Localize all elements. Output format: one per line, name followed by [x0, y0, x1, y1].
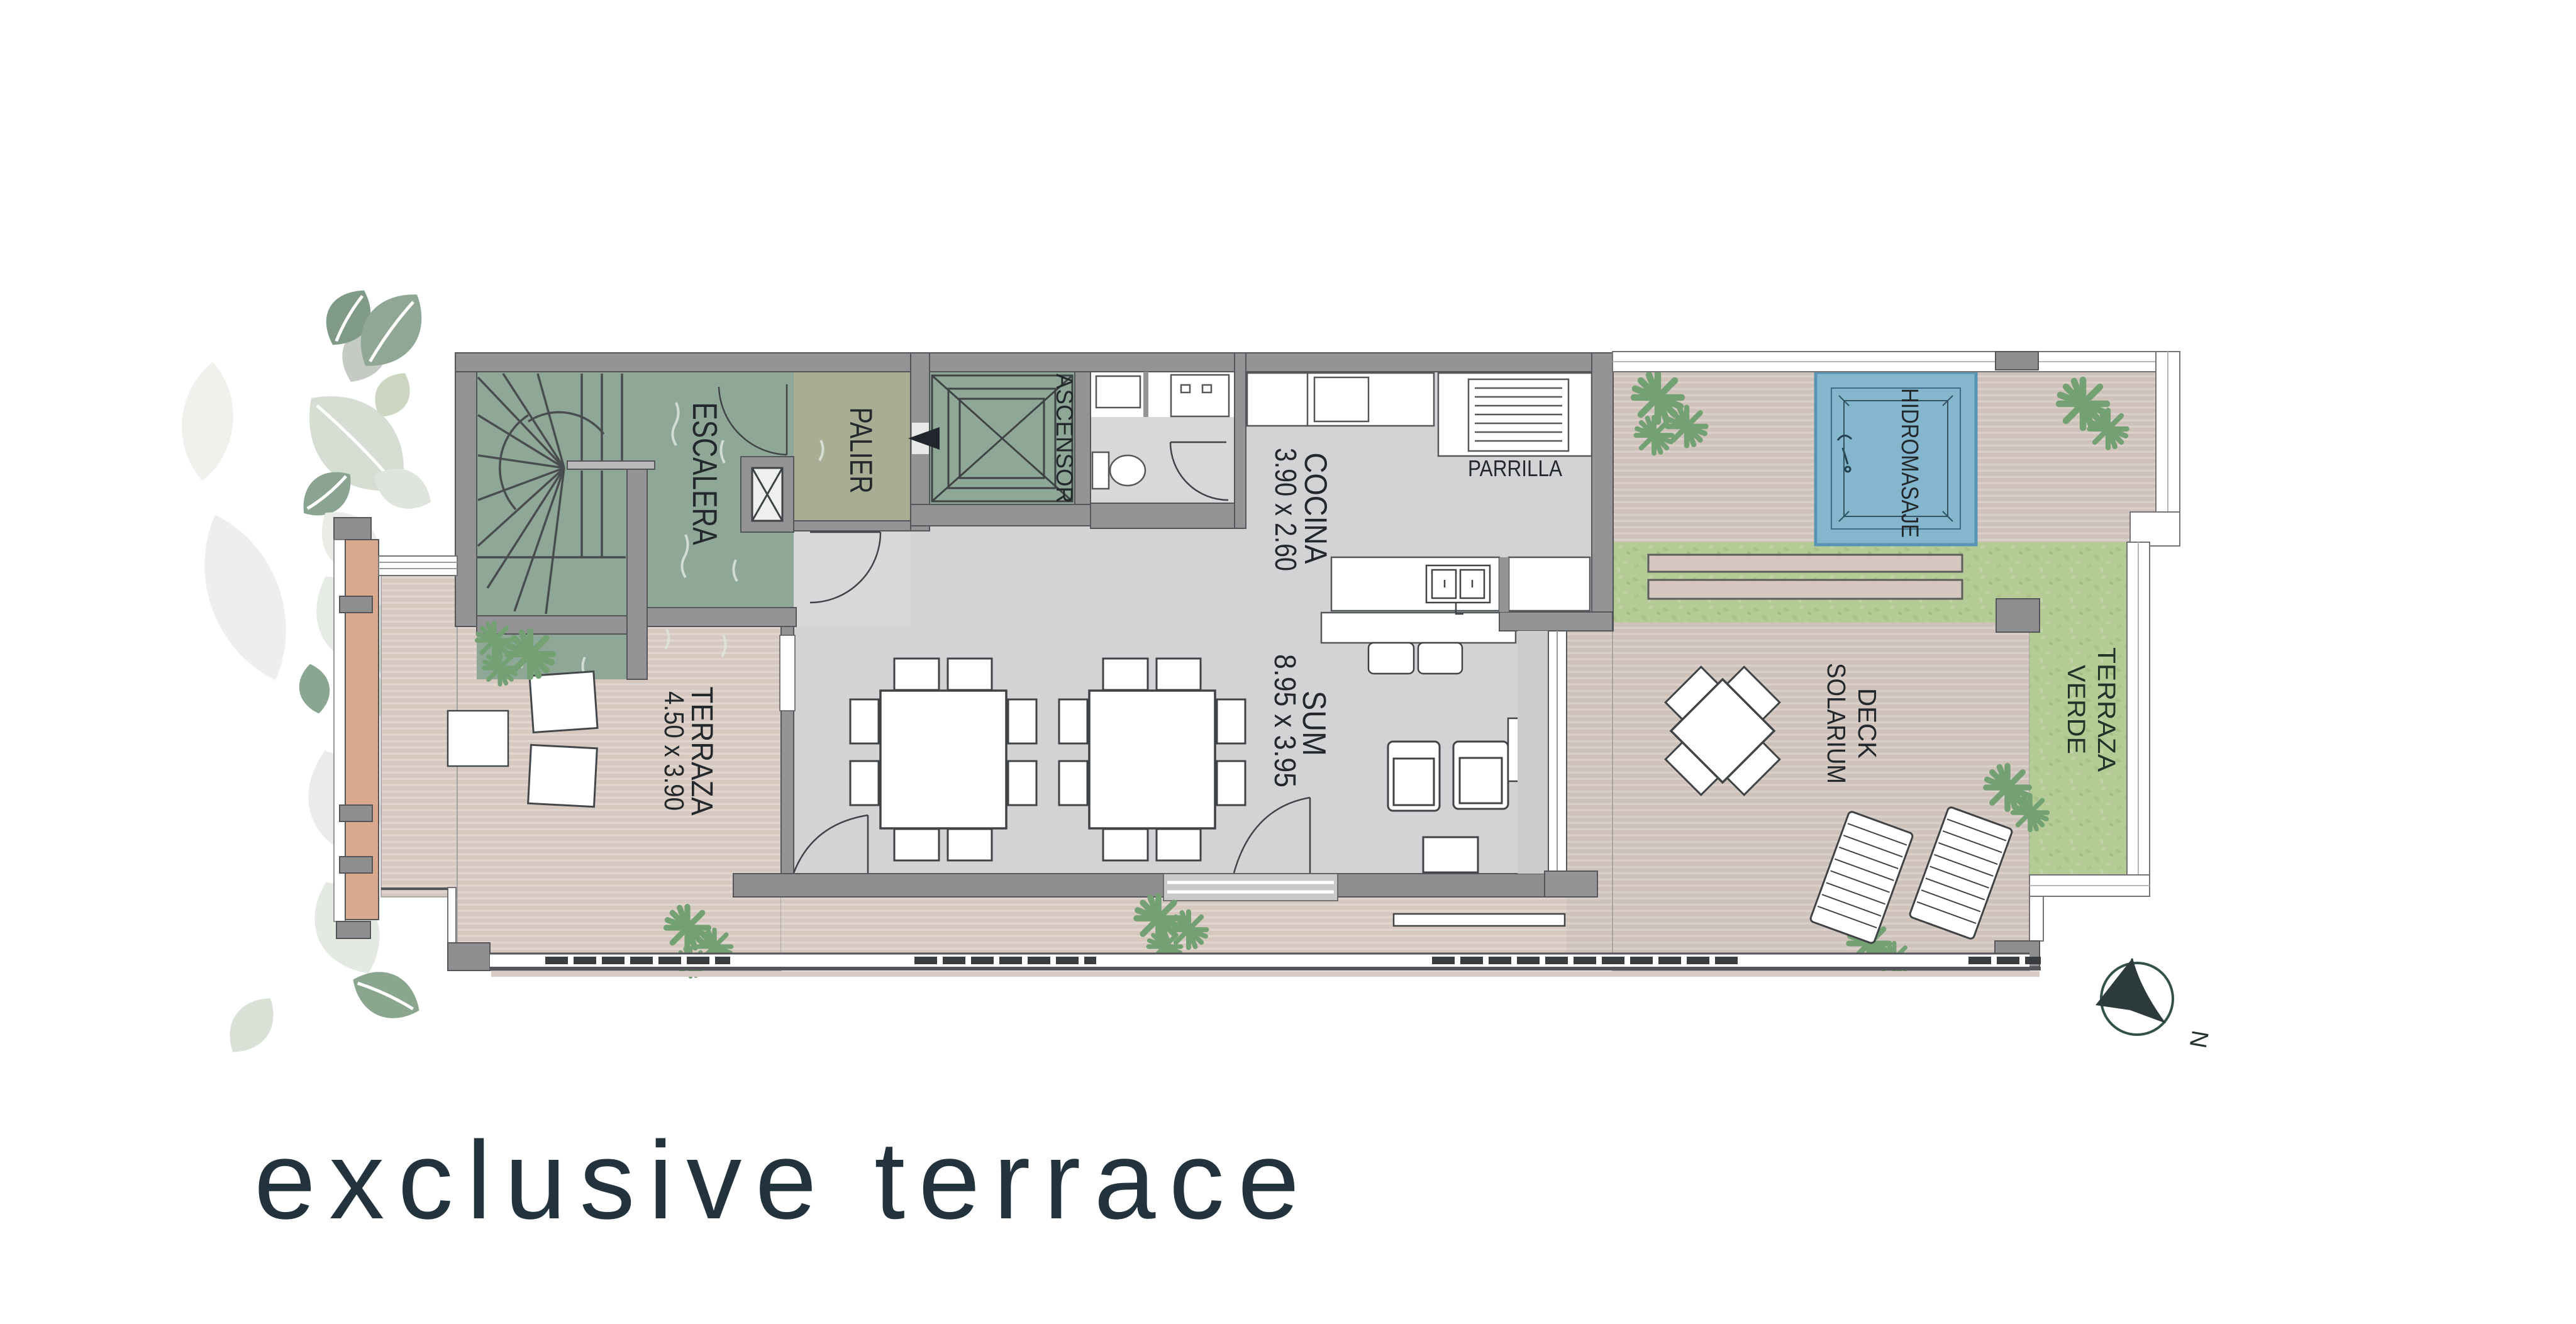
svg-text:VERDE: VERDE [2062, 665, 2090, 754]
svg-text:COCINA: COCINA [1298, 453, 1333, 565]
svg-text:HIDROMASAJE: HIDROMASAJE [1896, 388, 1923, 538]
svg-text:PARRILLA: PARRILLA [1468, 455, 1562, 481]
svg-text:3.90 x 2.60: 3.90 x 2.60 [1269, 448, 1302, 571]
svg-text:ASCENSOR: ASCENSOR [1052, 374, 1077, 503]
svg-text:4.50 x 3.90: 4.50 x 3.90 [658, 691, 689, 811]
svg-text:DECK: DECK [1853, 688, 1882, 759]
svg-text:PALIER: PALIER [843, 408, 879, 494]
svg-text:SOLARIUM: SOLARIUM [1822, 663, 1851, 784]
svg-text:exclusive terrace: exclusive terrace [254, 1119, 1308, 1242]
svg-text:8.95 x 3.95: 8.95 x 3.95 [1268, 654, 1301, 787]
svg-text:ESCALERA: ESCALERA [686, 403, 724, 545]
svg-text:TERRAZA: TERRAZA [2092, 647, 2120, 772]
